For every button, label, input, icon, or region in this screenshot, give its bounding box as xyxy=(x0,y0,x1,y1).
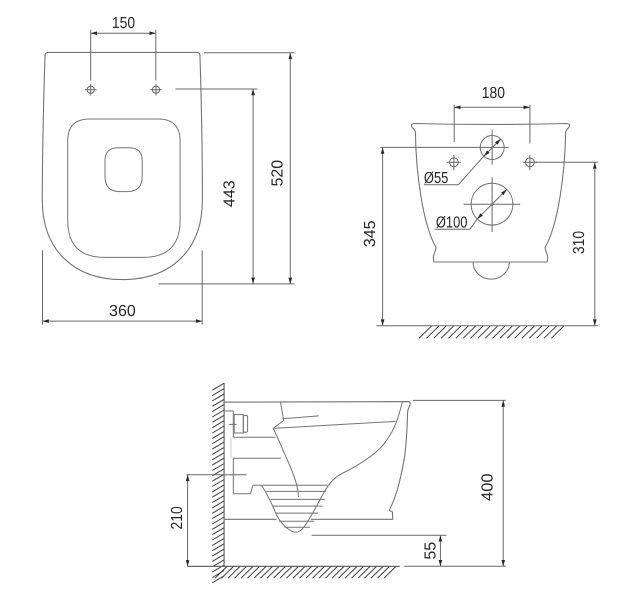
svg-text:443: 443 xyxy=(221,180,238,207)
svg-text:210: 210 xyxy=(169,506,186,529)
svg-text:150: 150 xyxy=(112,15,135,32)
svg-text:180: 180 xyxy=(482,85,505,102)
svg-text:400: 400 xyxy=(480,473,497,501)
svg-text:310: 310 xyxy=(571,231,588,254)
svg-text:Ø100: Ø100 xyxy=(436,214,468,231)
svg-text:345: 345 xyxy=(362,220,379,247)
svg-text:360: 360 xyxy=(109,303,136,320)
svg-text:55: 55 xyxy=(422,542,439,560)
svg-text:520: 520 xyxy=(269,160,286,187)
